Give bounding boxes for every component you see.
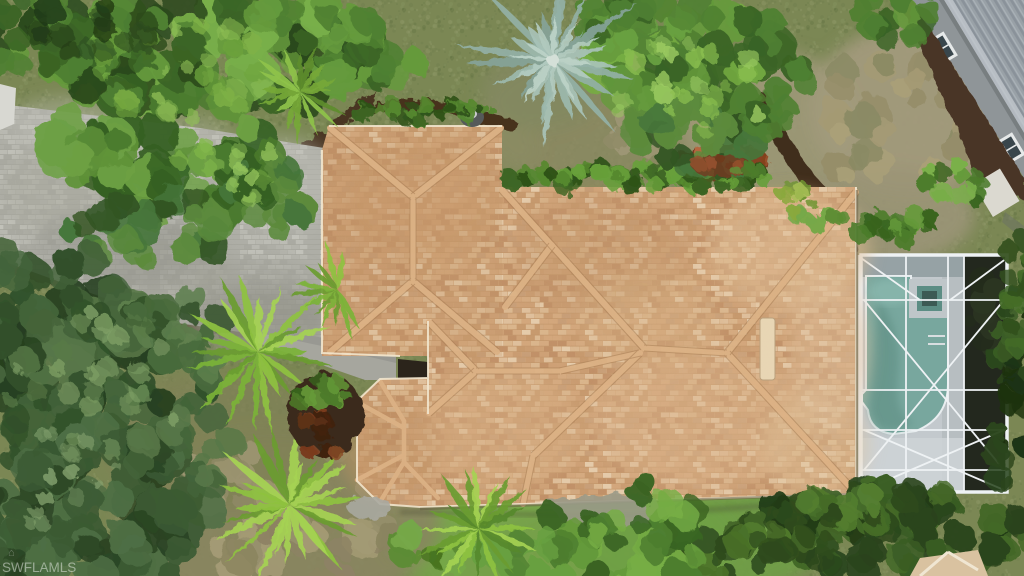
svg-text:SWFLAMLS: SWFLAMLS: [2, 560, 76, 575]
svg-text:⌂: ⌂: [8, 547, 15, 559]
